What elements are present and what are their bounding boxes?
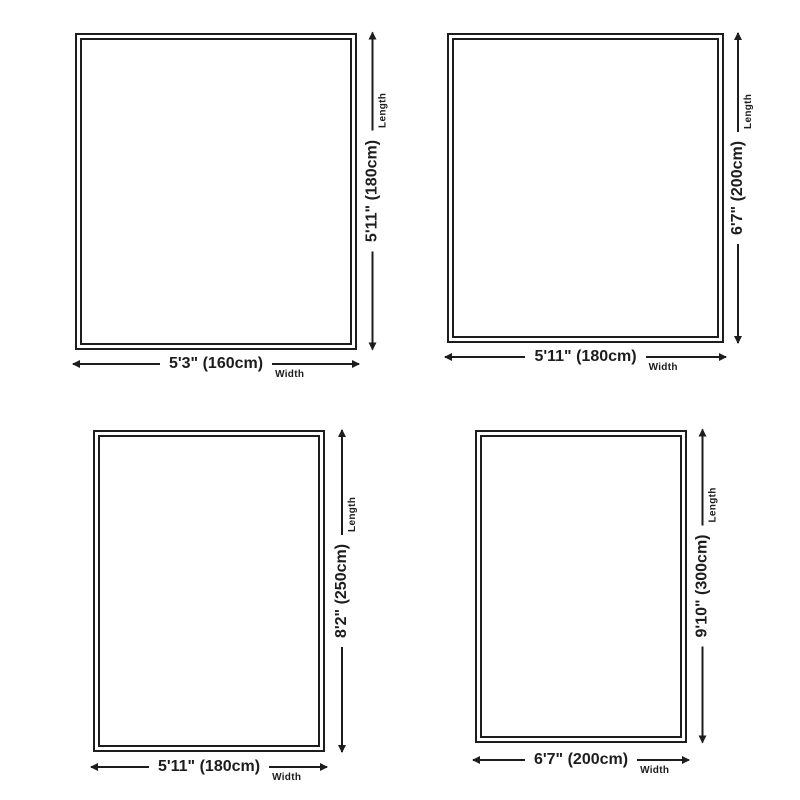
- length-caption: Length: [743, 94, 754, 129]
- rug-inner-border: [80, 38, 352, 345]
- arrow-left-icon: [91, 766, 149, 768]
- length-value-label: 8'2" (250cm): [332, 535, 352, 647]
- length-caption: Length: [708, 487, 719, 522]
- length-dimension-arrow: 8'2" (250cm) Length: [332, 430, 352, 752]
- arrow-up-icon: [702, 429, 704, 525]
- width-caption: Width: [275, 369, 304, 380]
- length-dimension-arrow: 9'10" (300cm) Length: [693, 430, 713, 743]
- width-caption: Width: [649, 362, 678, 373]
- length-value-label: 5'11" (180cm): [363, 131, 383, 251]
- length-value-label: 9'10" (300cm): [693, 525, 713, 646]
- width-dimension-arrow: 6'7" (200cm) Width: [473, 750, 689, 770]
- arrow-right-icon: [637, 759, 689, 761]
- rug-outline-180x200: [447, 33, 724, 343]
- width-dimension-arrow: 5'11" (180cm) Width: [445, 347, 726, 367]
- rug-outline-160x180: [75, 33, 357, 350]
- arrow-left-icon: [473, 759, 525, 761]
- arrow-down-icon: [341, 647, 343, 752]
- arrow-up-icon: [737, 33, 739, 132]
- width-value-label: 5'11" (180cm): [149, 757, 269, 777]
- width-dimension-arrow: 5'11" (180cm) Width: [91, 757, 327, 777]
- width-caption: Width: [272, 772, 301, 783]
- arrow-up-icon: [372, 33, 374, 131]
- arrow-left-icon: [73, 363, 160, 365]
- arrow-left-icon: [445, 356, 525, 358]
- length-value-label: 6'7" (200cm): [728, 132, 748, 244]
- rug-inner-border: [98, 435, 320, 747]
- rug-inner-border: [480, 435, 682, 738]
- length-caption: Length: [378, 93, 389, 128]
- length-dimension-arrow: 6'7" (200cm) Length: [728, 33, 748, 343]
- arrow-right-icon: [646, 356, 726, 358]
- arrow-down-icon: [372, 251, 374, 349]
- width-value-label: 5'3" (160cm): [160, 354, 272, 374]
- rug-outline-180x250: [93, 430, 325, 752]
- width-caption: Width: [640, 765, 669, 776]
- size-chart-diagram: 5'3" (160cm) Width 5'11" (180cm) Length …: [0, 0, 800, 800]
- rug-inner-border: [452, 38, 719, 338]
- arrow-up-icon: [341, 430, 343, 535]
- arrow-down-icon: [737, 244, 739, 343]
- rug-outline-200x300: [475, 430, 687, 743]
- width-value-label: 5'11" (180cm): [525, 347, 645, 367]
- width-value-label: 6'7" (200cm): [525, 750, 637, 770]
- length-dimension-arrow: 5'11" (180cm) Length: [363, 33, 383, 350]
- arrow-right-icon: [272, 363, 359, 365]
- arrow-right-icon: [269, 766, 327, 768]
- length-caption: Length: [347, 497, 358, 532]
- width-dimension-arrow: 5'3" (160cm) Width: [73, 354, 359, 374]
- arrow-down-icon: [702, 647, 704, 743]
